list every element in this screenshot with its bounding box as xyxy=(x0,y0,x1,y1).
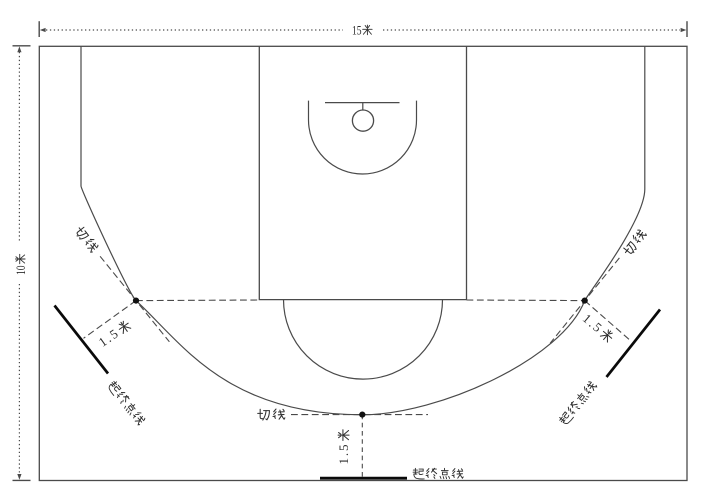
svg-text:15: 15 xyxy=(352,24,362,38)
svg-text:1.5: 1.5 xyxy=(336,445,351,465)
svg-text:10: 10 xyxy=(14,265,28,275)
